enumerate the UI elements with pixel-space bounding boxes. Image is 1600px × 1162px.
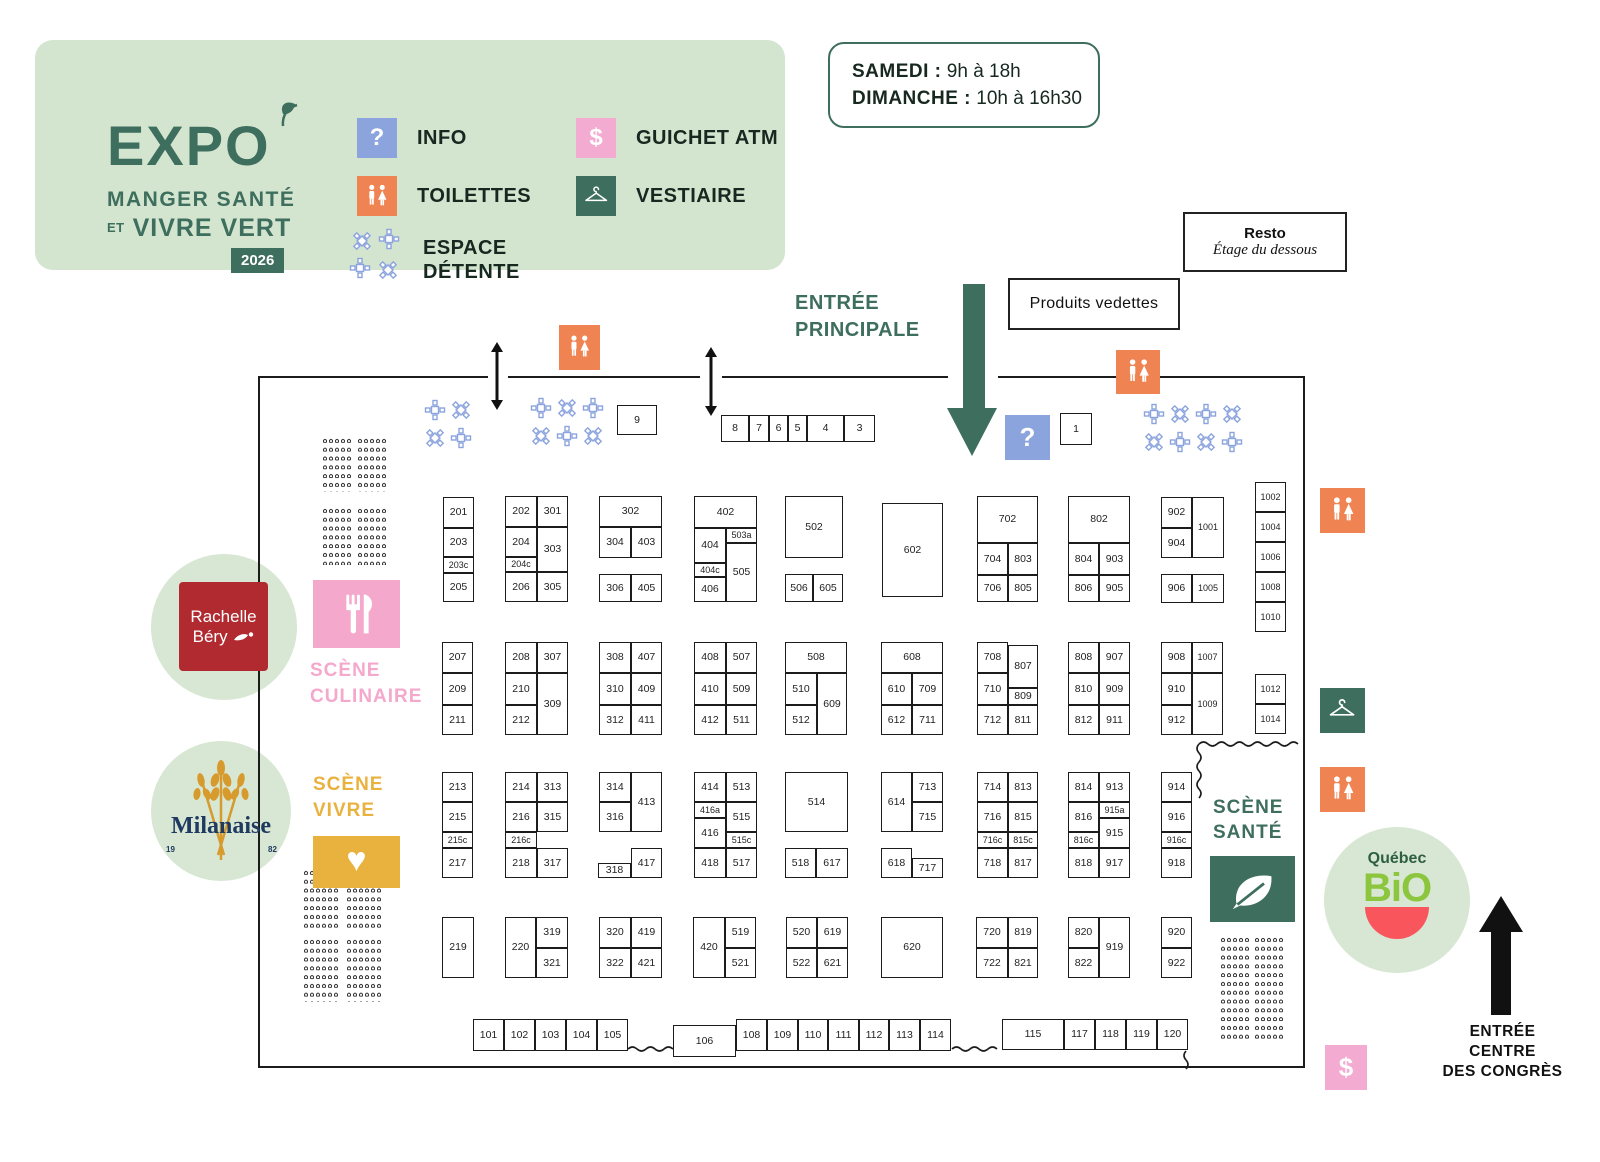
booth-302: 302 bbox=[599, 496, 662, 527]
booth-111: 111 bbox=[828, 1019, 859, 1051]
booth-406: 406 bbox=[694, 577, 726, 602]
milanaise-year-19: 19 bbox=[166, 845, 175, 854]
atm-icon: $ bbox=[576, 118, 616, 158]
detente-table-icon bbox=[1221, 431, 1243, 453]
booth-515: 515 bbox=[726, 802, 757, 832]
logo-line2: MANGER SANTÉ bbox=[107, 188, 307, 212]
booth-1006: 1006 bbox=[1255, 542, 1286, 572]
seating-rows bbox=[1254, 936, 1283, 1040]
booth-1014: 1014 bbox=[1255, 704, 1286, 734]
booth-402: 402 bbox=[694, 496, 757, 528]
booth-708: 708 bbox=[977, 642, 1008, 673]
booth-1001: 1001 bbox=[1192, 497, 1224, 558]
rachelle-bery-logo: Rachelle Béry bbox=[179, 582, 268, 671]
booth-517: 517 bbox=[726, 848, 757, 878]
booth-404c: 404c bbox=[694, 563, 726, 577]
expo-logo: EXPO MANGER SANTÉ ET VIVRE VERT 2026 bbox=[107, 118, 307, 288]
booth-306: 306 bbox=[599, 574, 631, 602]
booth-614: 614 bbox=[881, 772, 912, 832]
booth-310: 310 bbox=[599, 673, 631, 705]
booth-717: 717 bbox=[912, 858, 943, 878]
booth-203c: 203c bbox=[443, 557, 474, 573]
booth-709: 709 bbox=[912, 673, 943, 705]
booth-802: 802 bbox=[1068, 496, 1130, 543]
booth-903: 903 bbox=[1099, 543, 1130, 575]
booth-713: 713 bbox=[912, 772, 943, 802]
milanaise-year-82: 82 bbox=[268, 845, 277, 854]
booth-813: 813 bbox=[1008, 772, 1038, 802]
detente-table-icon bbox=[1143, 403, 1165, 425]
booth-120: 120 bbox=[1157, 1019, 1188, 1050]
booth-521: 521 bbox=[725, 948, 756, 978]
booth-706: 706 bbox=[977, 575, 1008, 602]
seating-rows bbox=[303, 938, 340, 1002]
logo-line3: ET VIVRE VERT bbox=[107, 214, 307, 243]
booth-110: 110 bbox=[798, 1019, 828, 1051]
booth-621: 621 bbox=[817, 948, 848, 978]
booth-1002: 1002 bbox=[1255, 482, 1286, 512]
booth-320: 320 bbox=[599, 917, 631, 948]
booth-115: 115 bbox=[1002, 1019, 1064, 1050]
booth-914: 914 bbox=[1161, 772, 1192, 802]
booth-1004: 1004 bbox=[1255, 512, 1286, 542]
logo-year-badge: 2026 bbox=[231, 248, 284, 273]
booth-513: 513 bbox=[726, 772, 757, 802]
booth-104: 104 bbox=[566, 1019, 597, 1051]
booth-714: 714 bbox=[977, 772, 1008, 802]
booth-815c: 815c bbox=[1008, 832, 1038, 848]
map-wall bbox=[258, 376, 488, 378]
detente-table-icon bbox=[1143, 431, 1165, 453]
booth-515c: 515c bbox=[726, 832, 757, 848]
booth-1010: 1010 bbox=[1255, 602, 1286, 632]
booth-209: 209 bbox=[442, 673, 473, 705]
booth-204c: 204c bbox=[505, 557, 537, 572]
scene-sante-box bbox=[1210, 856, 1295, 922]
booth-505: 505 bbox=[726, 543, 757, 602]
booth-1012: 1012 bbox=[1255, 674, 1286, 704]
booth-217: 217 bbox=[442, 848, 473, 878]
booth-916: 916 bbox=[1161, 802, 1192, 832]
booth-716: 716 bbox=[977, 802, 1008, 832]
booth-913: 913 bbox=[1099, 772, 1130, 802]
booth-3: 3 bbox=[844, 415, 875, 442]
booth-619: 619 bbox=[817, 917, 848, 948]
booth-809: 809 bbox=[1008, 688, 1038, 705]
booth-417: 417 bbox=[631, 848, 662, 878]
detente-table-icon bbox=[1195, 403, 1217, 425]
booth-602: 602 bbox=[882, 503, 943, 597]
leaf-icon bbox=[1225, 867, 1281, 911]
scene-culinaire-label: SCÈNE CULINAIRE bbox=[310, 658, 422, 710]
rachelle-leaf-icon bbox=[232, 631, 254, 643]
vestiaire-icon bbox=[1320, 688, 1365, 733]
booth-416a: 416a bbox=[694, 802, 726, 818]
booth-712: 712 bbox=[977, 705, 1008, 735]
booth-4: 4 bbox=[807, 415, 844, 442]
main-entrance-label: ENTRÉE PRINCIPALE bbox=[795, 290, 920, 344]
booth-113: 113 bbox=[889, 1019, 920, 1051]
booth-608: 608 bbox=[881, 642, 943, 673]
booth-313: 313 bbox=[537, 772, 568, 802]
booth-617: 617 bbox=[816, 848, 848, 878]
booth-409: 409 bbox=[631, 673, 662, 705]
booth-106: 106 bbox=[673, 1025, 736, 1057]
booth-610: 610 bbox=[881, 673, 912, 705]
booth-410: 410 bbox=[694, 673, 726, 705]
detente-table-icon bbox=[424, 399, 446, 421]
produits-vedettes-box: Produits vedettes bbox=[1008, 278, 1180, 330]
booth-118: 118 bbox=[1095, 1019, 1126, 1050]
map-wall bbox=[258, 1066, 1303, 1068]
booth-502: 502 bbox=[785, 496, 843, 558]
info-icon: ? bbox=[357, 118, 397, 158]
booth-316: 316 bbox=[599, 802, 631, 832]
booth-119: 119 bbox=[1126, 1019, 1157, 1050]
booth-108: 108 bbox=[736, 1019, 767, 1051]
booth-215: 215 bbox=[442, 802, 473, 832]
booth-216: 216 bbox=[505, 802, 537, 832]
booth-612: 612 bbox=[881, 705, 912, 735]
detente-table-icon bbox=[450, 399, 472, 421]
booth-716c: 716c bbox=[977, 832, 1008, 848]
booth-720: 720 bbox=[976, 917, 1008, 948]
booth-1008: 1008 bbox=[1255, 572, 1286, 602]
booth-818: 818 bbox=[1068, 848, 1099, 878]
map-wall bbox=[1303, 376, 1305, 1068]
wavy-wall bbox=[952, 1047, 997, 1051]
booth-808: 808 bbox=[1068, 642, 1099, 673]
rachelle-bery-line2: Béry bbox=[193, 627, 255, 647]
legend-item-label: VESTIAIRE bbox=[636, 176, 746, 208]
map-wall bbox=[722, 376, 948, 378]
legend-item-label: GUICHET ATM bbox=[636, 118, 778, 150]
passage-arrow-icon bbox=[491, 342, 503, 352]
seating-rows bbox=[322, 507, 353, 565]
logo-apple-leaf-icon bbox=[265, 102, 299, 128]
booth-817: 817 bbox=[1008, 848, 1038, 878]
resto-title: Resto bbox=[1244, 225, 1286, 242]
booth-810: 810 bbox=[1068, 673, 1099, 705]
booth-408: 408 bbox=[694, 642, 726, 673]
congress-entrance-label: ENTRÉE CENTRE DES CONGRÈS bbox=[1420, 1022, 1585, 1082]
booth-206: 206 bbox=[505, 572, 537, 602]
hours-box: SAMEDI : 9h à 18h DIMANCHE : 10h à 16h30 bbox=[828, 42, 1100, 128]
booth-204: 204 bbox=[505, 527, 537, 557]
legend-item-info: ?INFO bbox=[357, 118, 467, 158]
booth-103: 103 bbox=[535, 1019, 566, 1051]
toilets-icon bbox=[559, 325, 600, 370]
map-wall bbox=[508, 376, 700, 378]
detente-table-icon bbox=[1169, 403, 1191, 425]
detente-table-icon bbox=[582, 397, 604, 419]
booth-112: 112 bbox=[859, 1019, 889, 1051]
booth-314: 314 bbox=[599, 772, 631, 802]
booth-907: 907 bbox=[1099, 642, 1130, 673]
legend-item-label: TOILETTES bbox=[417, 176, 531, 208]
booth-9: 9 bbox=[617, 405, 657, 435]
booth-307: 307 bbox=[537, 642, 568, 673]
seating-rows bbox=[357, 507, 388, 565]
booth-509: 509 bbox=[726, 673, 757, 705]
booth-503a: 503a bbox=[726, 528, 757, 543]
booth-201: 201 bbox=[443, 497, 474, 528]
booth-205: 205 bbox=[443, 573, 474, 602]
booth-704: 704 bbox=[977, 543, 1008, 575]
booth-917: 917 bbox=[1099, 848, 1130, 878]
booth-411: 411 bbox=[631, 705, 662, 735]
booth-507: 507 bbox=[726, 642, 757, 673]
booth-711: 711 bbox=[912, 705, 943, 735]
booth-420: 420 bbox=[693, 917, 725, 978]
booth-1: 1 bbox=[1060, 413, 1092, 445]
booth-114: 114 bbox=[920, 1019, 951, 1051]
booth-605: 605 bbox=[813, 574, 843, 602]
info-icon: ? bbox=[1005, 415, 1050, 460]
scene-sante-wavy-border bbox=[1199, 742, 1298, 746]
booth-109: 109 bbox=[767, 1019, 798, 1051]
vestiaire-icon bbox=[576, 176, 616, 216]
booth-308: 308 bbox=[599, 642, 631, 673]
booth-920: 920 bbox=[1161, 917, 1192, 948]
resto-subtitle: Étage du dessous bbox=[1213, 242, 1317, 259]
booth-412: 412 bbox=[694, 705, 726, 735]
booth-816: 816 bbox=[1068, 802, 1099, 832]
booth-212: 212 bbox=[505, 705, 537, 735]
booth-305: 305 bbox=[537, 572, 568, 602]
seating-rows bbox=[322, 437, 353, 492]
booth-910: 910 bbox=[1161, 673, 1192, 705]
booth-820: 820 bbox=[1068, 917, 1099, 948]
seating-rows bbox=[346, 938, 383, 1002]
legend-item-toilets: TOILETTES bbox=[357, 176, 531, 216]
booth-506: 506 bbox=[785, 574, 813, 602]
booth-207: 207 bbox=[442, 642, 473, 673]
cutlery-icon bbox=[328, 585, 386, 643]
booth-715: 715 bbox=[912, 802, 943, 832]
booth-909: 909 bbox=[1099, 673, 1130, 705]
booth-404: 404 bbox=[694, 528, 726, 563]
detente-table-icon bbox=[582, 425, 604, 447]
booth-407: 407 bbox=[631, 642, 662, 673]
booth-218: 218 bbox=[505, 848, 537, 878]
booth-911: 911 bbox=[1099, 705, 1130, 735]
detente-table-icon bbox=[1221, 403, 1243, 425]
booth-804: 804 bbox=[1068, 543, 1099, 575]
booth-908: 908 bbox=[1161, 642, 1192, 673]
passage-arrow-icon bbox=[705, 406, 717, 416]
toilets-icon bbox=[357, 176, 397, 216]
booth-315: 315 bbox=[537, 802, 568, 832]
booth-216c: 216c bbox=[505, 832, 537, 848]
booth-814: 814 bbox=[1068, 772, 1099, 802]
booth-319: 319 bbox=[536, 917, 568, 948]
booth-413: 413 bbox=[631, 772, 662, 832]
booth-805: 805 bbox=[1008, 575, 1038, 602]
booth-807: 807 bbox=[1008, 645, 1038, 688]
booth-210: 210 bbox=[505, 673, 537, 705]
booth-508: 508 bbox=[785, 642, 847, 673]
booth-702: 702 bbox=[977, 496, 1038, 543]
booth-915a: 915a bbox=[1099, 802, 1130, 818]
booth-819: 819 bbox=[1008, 917, 1038, 948]
resto-box: Resto Étage du dessous bbox=[1183, 212, 1347, 272]
booth-321: 321 bbox=[536, 948, 568, 978]
main-entrance-arrow-icon bbox=[963, 284, 985, 410]
legend-item-label: INFO bbox=[417, 118, 467, 150]
passage-arrow-icon bbox=[491, 400, 503, 410]
legend-item-vestiaire: VESTIAIRE bbox=[576, 176, 746, 216]
congress-entrance-arrow-icon bbox=[1479, 896, 1523, 932]
booth-203: 203 bbox=[443, 528, 474, 557]
booth-905: 905 bbox=[1099, 575, 1130, 602]
scene-sante-label: SCÈNE SANTÉ bbox=[1213, 795, 1283, 845]
booth-105: 105 bbox=[597, 1019, 628, 1051]
booth-117: 117 bbox=[1064, 1019, 1095, 1050]
detente-table-icon bbox=[530, 397, 552, 419]
booth-303: 303 bbox=[537, 527, 568, 572]
wheat-icon bbox=[176, 750, 266, 870]
scene-vivre-label: SCÈNE VIVRE bbox=[313, 772, 383, 824]
map-wall bbox=[258, 376, 260, 1068]
booth-405: 405 bbox=[631, 574, 662, 602]
booth-419: 419 bbox=[631, 917, 662, 948]
booth-806: 806 bbox=[1068, 575, 1099, 602]
toilets-icon bbox=[1320, 767, 1365, 812]
booth-1007: 1007 bbox=[1192, 642, 1223, 673]
booth-522: 522 bbox=[786, 948, 817, 978]
detente-table-icon bbox=[530, 425, 552, 447]
legend-item-atm: $GUICHET ATM bbox=[576, 118, 778, 158]
booth-301: 301 bbox=[537, 496, 568, 527]
booth-1009: 1009 bbox=[1192, 673, 1223, 735]
produits-vedettes-label: Produits vedettes bbox=[1030, 295, 1159, 313]
booth-317: 317 bbox=[537, 848, 568, 878]
booth-916c: 916c bbox=[1161, 832, 1192, 848]
booth-918: 918 bbox=[1161, 848, 1192, 878]
booth-609: 609 bbox=[817, 673, 847, 735]
seating-rows bbox=[357, 437, 388, 492]
booth-6: 6 bbox=[769, 415, 788, 442]
booth-414: 414 bbox=[694, 772, 726, 802]
heart-icon: ♥ bbox=[346, 841, 366, 880]
booth-902: 902 bbox=[1161, 497, 1192, 528]
booth-822: 822 bbox=[1068, 948, 1099, 978]
booth-1005: 1005 bbox=[1192, 574, 1224, 603]
booth-922: 922 bbox=[1161, 948, 1192, 978]
booth-101: 101 bbox=[473, 1019, 504, 1051]
booth-416: 416 bbox=[694, 818, 726, 848]
hours-sunday: DIMANCHE : 10h à 16h30 bbox=[852, 85, 1098, 112]
booth-202: 202 bbox=[505, 496, 537, 527]
detente-icon bbox=[351, 228, 403, 284]
booth-812: 812 bbox=[1068, 705, 1099, 735]
detente-table-icon bbox=[424, 427, 446, 449]
detente-table-icon bbox=[556, 425, 578, 447]
booth-214: 214 bbox=[505, 772, 537, 802]
booth-215c: 215c bbox=[442, 832, 473, 848]
booth-208: 208 bbox=[505, 642, 537, 673]
legend-item-detente: ESPACE DÉTENTE bbox=[351, 228, 520, 284]
booth-213: 213 bbox=[442, 772, 473, 802]
booth-803: 803 bbox=[1008, 543, 1038, 575]
booth-811: 811 bbox=[1008, 705, 1038, 735]
booth-620: 620 bbox=[881, 917, 943, 978]
detente-table-icon bbox=[1195, 431, 1217, 453]
booth-7: 7 bbox=[749, 415, 769, 442]
toilets-icon bbox=[1116, 350, 1160, 394]
milanaise-logo: Milanaise bbox=[151, 813, 291, 840]
booth-519: 519 bbox=[725, 917, 756, 948]
scene-sante-wavy-border bbox=[1197, 744, 1201, 798]
booth-309: 309 bbox=[537, 673, 568, 735]
booth-512: 512 bbox=[785, 705, 817, 735]
booth-318: 318 bbox=[598, 863, 631, 878]
booth-219: 219 bbox=[442, 917, 474, 978]
booth-618: 618 bbox=[881, 848, 912, 878]
booth-520: 520 bbox=[786, 917, 817, 948]
booth-915: 915 bbox=[1099, 818, 1130, 848]
toilets-icon bbox=[1320, 488, 1365, 533]
booth-514: 514 bbox=[785, 772, 848, 832]
booth-815: 815 bbox=[1008, 802, 1038, 832]
wavy-wall bbox=[628, 1047, 673, 1051]
booth-906: 906 bbox=[1161, 574, 1192, 603]
detente-table-icon bbox=[450, 427, 472, 449]
detente-table-icon bbox=[1169, 431, 1191, 453]
booth-418: 418 bbox=[694, 848, 726, 878]
legend-panel: EXPO MANGER SANTÉ ET VIVRE VERT 2026 ?IN… bbox=[35, 40, 785, 270]
booth-220: 220 bbox=[505, 917, 536, 978]
booth-722: 722 bbox=[976, 948, 1008, 978]
booth-718: 718 bbox=[977, 848, 1008, 878]
booth-816c: 816c bbox=[1068, 832, 1099, 848]
booth-8: 8 bbox=[721, 415, 749, 442]
booth-904: 904 bbox=[1161, 528, 1192, 558]
booth-5: 5 bbox=[788, 415, 807, 442]
booth-518: 518 bbox=[785, 848, 816, 878]
scene-culinaire-box bbox=[313, 580, 400, 648]
main-entrance-arrow-icon bbox=[947, 408, 997, 456]
seating-rows bbox=[1220, 936, 1249, 1040]
booth-322: 322 bbox=[599, 948, 631, 978]
booth-421: 421 bbox=[631, 948, 662, 978]
booth-919: 919 bbox=[1099, 917, 1130, 978]
booth-403: 403 bbox=[631, 527, 662, 558]
booth-102: 102 bbox=[504, 1019, 535, 1051]
booth-510: 510 bbox=[785, 673, 817, 705]
booth-710: 710 bbox=[977, 673, 1008, 705]
booth-312: 312 bbox=[599, 705, 631, 735]
atm-icon: $ bbox=[1325, 1045, 1367, 1090]
quebec-bio-wordmark: BiO bbox=[1327, 866, 1467, 911]
hours-saturday: SAMEDI : 9h à 18h bbox=[852, 58, 1098, 85]
legend-item-label: ESPACE DÉTENTE bbox=[423, 228, 520, 284]
congress-entrance-arrow-icon bbox=[1491, 931, 1511, 1015]
passage-arrow-icon bbox=[705, 347, 717, 357]
detente-table-icon bbox=[556, 397, 578, 419]
booth-211: 211 bbox=[442, 705, 473, 735]
booth-511: 511 bbox=[726, 705, 757, 735]
booth-821: 821 bbox=[1008, 948, 1038, 978]
booth-304: 304 bbox=[599, 527, 631, 558]
scene-vivre-box: ♥ bbox=[313, 836, 400, 888]
expo-floor-plan: EXPO MANGER SANTÉ ET VIVRE VERT 2026 ?IN… bbox=[0, 0, 1600, 1162]
booth-912: 912 bbox=[1161, 705, 1192, 735]
